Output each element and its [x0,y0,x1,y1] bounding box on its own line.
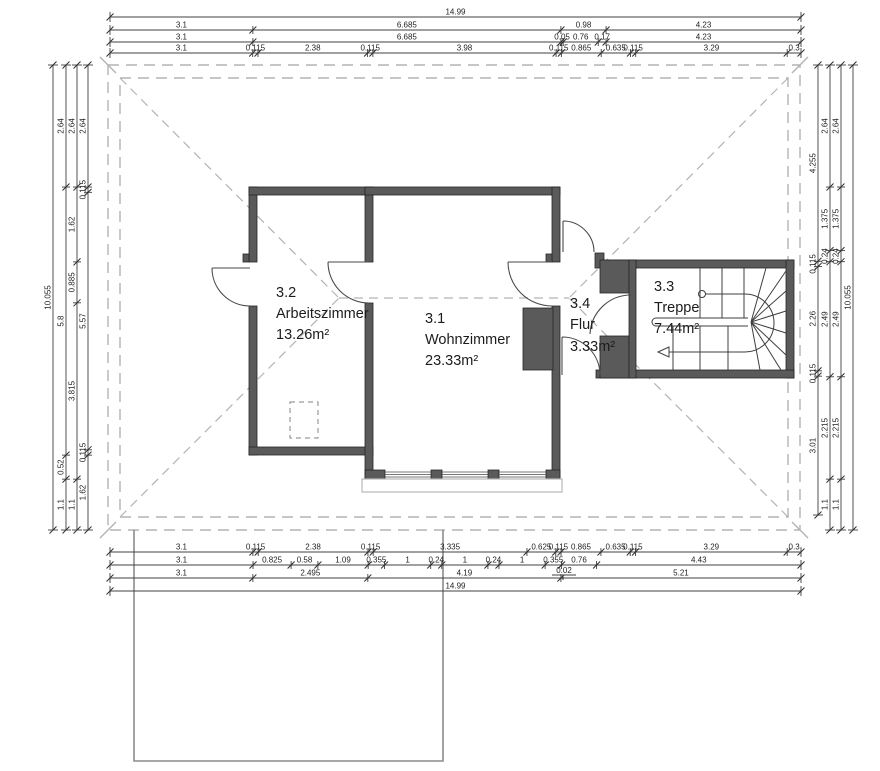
dim-label: 3.01 [809,437,818,453]
room-number: 3.4 [570,296,590,312]
dim-label: 2.64 [57,118,66,134]
dim-label: 2.215 [821,417,830,438]
dim-label: 1.1 [68,498,77,510]
dim-label: 1.62 [79,484,88,500]
dim-label: 2.64 [68,118,77,134]
dim-label: 1 [463,556,468,565]
dim-chain-top-3: 3.16.6850.050.760.174.23 [107,33,805,48]
dim-label: 1.09 [335,556,351,565]
wall-wohnzimmer-right-upper [552,187,560,262]
room-number: 3.3 [654,279,674,295]
wall-partition-lower [365,303,373,479]
dim-label: 4.19 [457,569,473,578]
dim-label: 2.49 [821,311,830,327]
dim-label: 0.76 [571,556,587,565]
wall-arbeitszimmer-left-lower [249,306,257,455]
wall-wohnzimmer-top [365,187,560,195]
dim-label: 1 [520,556,525,565]
door-wohnzimmer-flur [508,262,552,306]
dim-label: 4.23 [696,33,712,42]
dim-label: 0.24 [486,556,502,565]
dim-label: 1.375 [821,208,830,229]
room-area: 3.33m² [570,339,615,355]
dim-label: 0.115 [549,44,569,53]
offset-label: 0.02 [556,566,572,575]
dim-label: 2.64 [832,118,841,134]
dim-chain-top-4: 3.10.1152.380.1153.980.1150.8650.6350.11… [107,44,805,59]
dim-label: 0.98 [576,21,592,30]
wall-arbeitszimmer-top [249,187,373,195]
dim-label: 14.99 [445,8,466,17]
dim-label: 5.57 [79,313,88,329]
dim-label: 2.64 [821,118,830,134]
dim-label: 0.24 [428,556,444,565]
dim-label: 0.76 [573,33,589,42]
dim-label: 3.98 [457,44,473,53]
dim-label: 0.115 [623,44,643,53]
door-arbeitszimmer-exterior [212,268,250,306]
door-flur-treppe [590,295,631,334]
dim-label: 3.1 [176,44,188,53]
dim-label: 0.3 [789,44,801,53]
window-mullion [431,470,442,479]
dim-label: 14.99 [445,582,466,591]
dim-label: 1.375 [832,208,841,229]
chimney-block [523,308,553,370]
dim-label: 4.23 [696,21,712,30]
wall-door-foot [243,254,249,262]
dim-label: 3.815 [68,380,77,401]
dim-label: 4.43 [691,556,707,565]
dim-label: 1.1 [832,498,841,510]
wall-arbeitszimmer-bottom [249,447,373,455]
dim-label: 2.215 [832,417,841,438]
window-mullion [488,470,499,479]
stair-winder-fan [751,268,786,370]
dim-label: 0.115 [361,543,381,552]
dim-label: 0.355 [543,556,564,565]
dim-label: 3.335 [440,543,461,552]
stair-direction-arrow [658,347,669,357]
dim-label: 0.865 [571,543,592,552]
dim-label: 4.255 [809,153,818,174]
dim-label: 3.1 [176,21,188,30]
dim-label: 10.055 [844,285,853,310]
dim-label: 0.17 [594,33,610,42]
dim-label: 2.38 [305,44,321,53]
dim-label: 0.115 [246,44,266,53]
dim-label: 1.1 [821,498,830,510]
wall-treppe-left [629,260,636,378]
dim-label: 6.685 [397,21,418,30]
dim-label: 1.1 [57,498,66,510]
dim-label: 0.825 [262,556,283,565]
dim-label: 1 [405,556,410,565]
window-band [362,472,562,492]
chimney-dashed-outline [290,402,318,438]
room-area: 13.26m² [276,327,329,343]
dim-label: 0.115 [79,179,88,199]
dim-label: 0.115 [623,543,643,552]
dim-label: 10.055 [44,285,53,310]
dim-label: 0.24 [832,248,841,264]
dim-label: 0.58 [297,556,313,565]
wall-flur-treppe-upper [600,260,629,293]
dim-label: 0.115 [809,363,818,383]
room-name: Treppe [654,300,699,316]
stair-treads-upper [700,268,744,318]
dim-label: 0.115 [246,543,266,552]
dim-label: 0.3 [789,543,801,552]
dim-label: 0.115 [809,254,818,274]
roof-overhang-rect [108,65,800,530]
dim-label: 2.64 [79,118,88,134]
dim-chain-right-total: 10.055 [844,62,859,534]
floor-plan-canvas: 3.2 Arbeitszimmer 13.26m² 3.1 Wohnzimmer… [0,0,880,771]
dim-label: 2.49 [832,311,841,327]
room-name: Wohnzimmer [425,332,510,348]
door-balcony [563,221,594,252]
dim-label: 3.1 [176,33,188,42]
dim-label: 0.355 [366,556,387,565]
wall-partition-upper [365,187,373,262]
dim-label: 2.38 [305,543,321,552]
dim-label: 0.115 [549,543,569,552]
roof-inner-rect [120,78,788,517]
wall-arbeitszimmer-left-upper [249,187,257,262]
dim-label: 1.62 [68,216,77,232]
dim-label: 2.26 [809,310,818,326]
dim-label: 0.115 [360,44,380,53]
wall-door-foot [546,254,552,262]
dim-label: 3.1 [176,543,188,552]
window-sill-outline [362,479,562,492]
wall-treppe-right [786,260,794,378]
door-arbeitszimmer-wohnzimmer [328,262,369,303]
dim-chain-bottom-2: 3.10.8250.581.090.35510.2410.2410.3550.7… [107,556,805,571]
dim-label: 3.29 [704,543,720,552]
dim-label: 0.865 [571,44,592,53]
room-number: 3.1 [425,311,445,327]
dim-label: 3.29 [704,44,720,53]
dim-label: 5.21 [673,569,689,578]
dim-label: 2.495 [300,569,321,578]
dim-label: 3.1 [176,556,188,565]
dimension-chains: 14.99 3.16.6850.984.23 3.16.6850.050.760… [44,8,859,597]
dim-chain-bottom-total: 14.99 [107,582,805,597]
room-name: Arbeitszimmer [276,306,369,322]
room-name: Flur [570,317,595,333]
window-wall-segment [365,470,385,479]
dim-label: 0.52 [57,459,66,475]
dim-label: 5.8 [57,315,66,327]
dim-label: 3.1 [176,569,188,578]
room-number: 3.2 [276,285,296,301]
dim-label: 0.115 [79,442,88,462]
room-area: 23.33m² [425,353,478,369]
dim-label: 0.24 [821,248,830,264]
dim-label: 0.05 [554,33,570,42]
dim-label: 0.885 [68,272,77,293]
room-area: 7.44m² [654,321,699,337]
window-wall-segment [546,470,560,479]
dim-chain-left-4: 2.640.1155.570.1151.62 [79,62,94,534]
dim-label: 6.685 [397,33,418,42]
